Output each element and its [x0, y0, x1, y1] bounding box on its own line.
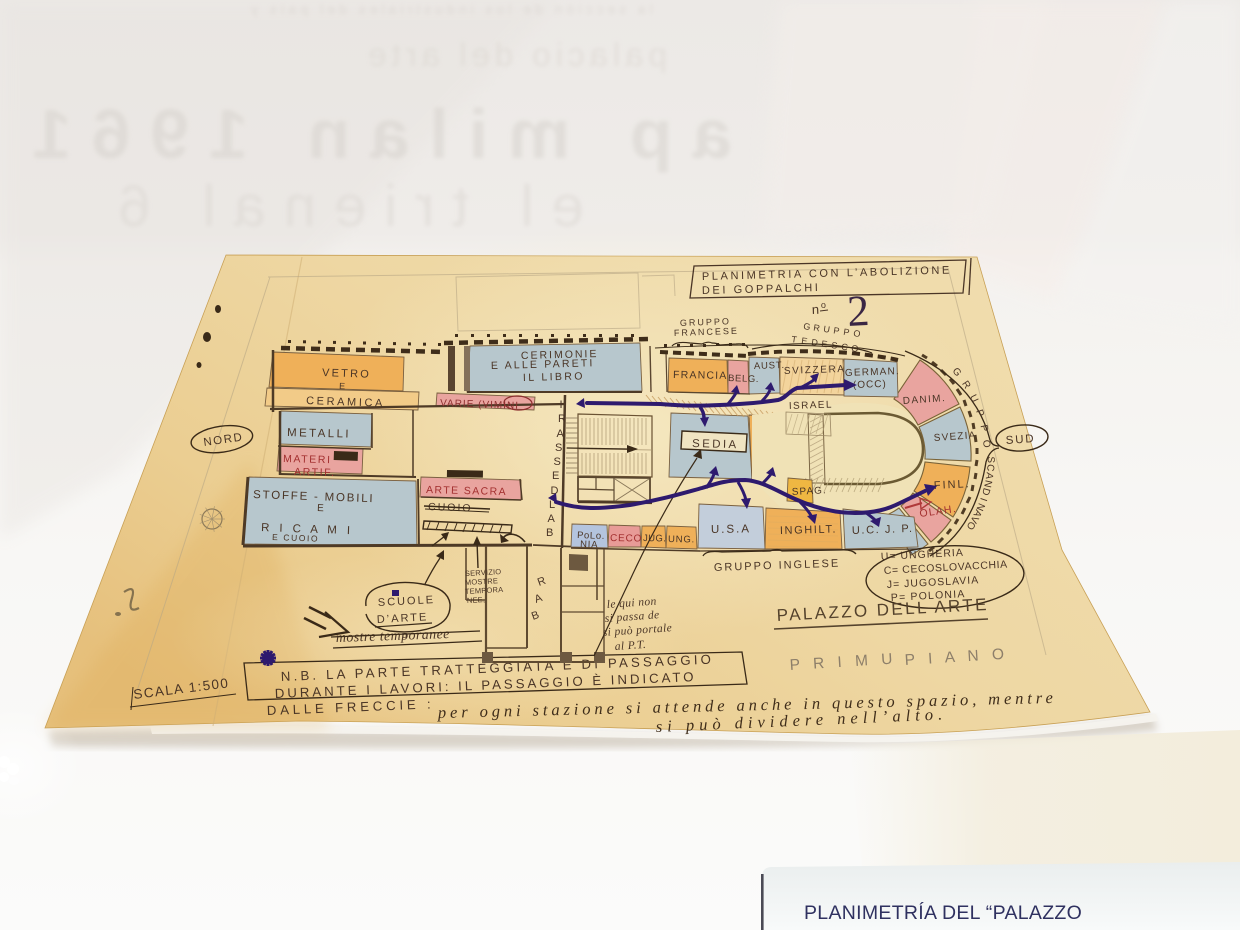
svg-text:S: S	[555, 442, 562, 454]
svg-text:A: A	[548, 513, 556, 525]
svg-text:C: C	[984, 464, 996, 472]
svg-text:FINL.: FINL.	[934, 478, 971, 492]
svg-text:JUG.: JUG.	[643, 533, 666, 544]
svg-text:INGHILT.: INGHILT.	[780, 524, 838, 537]
svg-text:ap milan 1961: ap milan 1961	[12, 95, 731, 173]
svg-text:palacio del arte: palacio del arte	[363, 36, 667, 73]
svg-text:I: I	[560, 399, 563, 411]
svg-text:S: S	[985, 456, 996, 463]
svg-text:ARTIF.: ARTIF.	[294, 466, 336, 479]
svg-text:R: R	[558, 413, 566, 425]
svg-text:al P.T.: al P.T.	[614, 639, 646, 653]
svg-text:(OCC): (OCC)	[853, 379, 887, 391]
svg-text:VETRO: VETRO	[322, 367, 371, 381]
svg-text:AUST.: AUST.	[754, 360, 785, 372]
svg-text:SUD: SUD	[1005, 433, 1035, 447]
svg-text:o: o	[821, 300, 826, 310]
svg-text:A: A	[557, 428, 565, 440]
svg-text:el trienal 6: el trienal 6	[100, 174, 584, 239]
svg-text:E: E	[339, 381, 346, 391]
svg-text:METALLI: METALLI	[287, 427, 351, 441]
svg-text:SPAG.: SPAG.	[792, 485, 827, 498]
svg-text:O: O	[980, 439, 992, 448]
svg-text:MATERI: MATERI	[283, 453, 332, 466]
svg-text:PLANIMETRÍA DEL “PALAZZO: PLANIMETRÍA DEL “PALAZZO	[804, 901, 1082, 924]
svg-text:NEE,: NEE,	[467, 595, 486, 605]
svg-text:S: S	[554, 456, 561, 468]
svg-text:IL LIBRO: IL LIBRO	[523, 370, 585, 384]
svg-text:E: E	[317, 503, 325, 514]
svg-text:U.S.A: U.S.A	[711, 523, 751, 536]
svg-text:FRANCIA: FRANCIA	[673, 369, 728, 382]
svg-text:ISRAEL: ISRAEL	[789, 399, 833, 412]
svg-text:CECO: CECO	[610, 533, 642, 545]
svg-text:GERMAN.: GERMAN.	[845, 366, 900, 379]
svg-text:ARTE SACRA: ARTE SACRA	[426, 484, 507, 498]
svg-text:B: B	[546, 527, 553, 539]
svg-text:la sección de los industriales: la sección de los industriales del país …	[247, 1, 653, 17]
svg-text:UNG.: UNG.	[668, 534, 695, 545]
svg-text:E: E	[552, 470, 559, 482]
svg-text:BELG.: BELG.	[728, 373, 759, 385]
svg-text:n: n	[812, 302, 820, 317]
svg-text:U.C. J. P.: U.C. J. P.	[852, 523, 914, 537]
svg-text:SEDIA: SEDIA	[692, 438, 739, 451]
svg-text:E CUOIO: E CUOIO	[272, 532, 319, 544]
